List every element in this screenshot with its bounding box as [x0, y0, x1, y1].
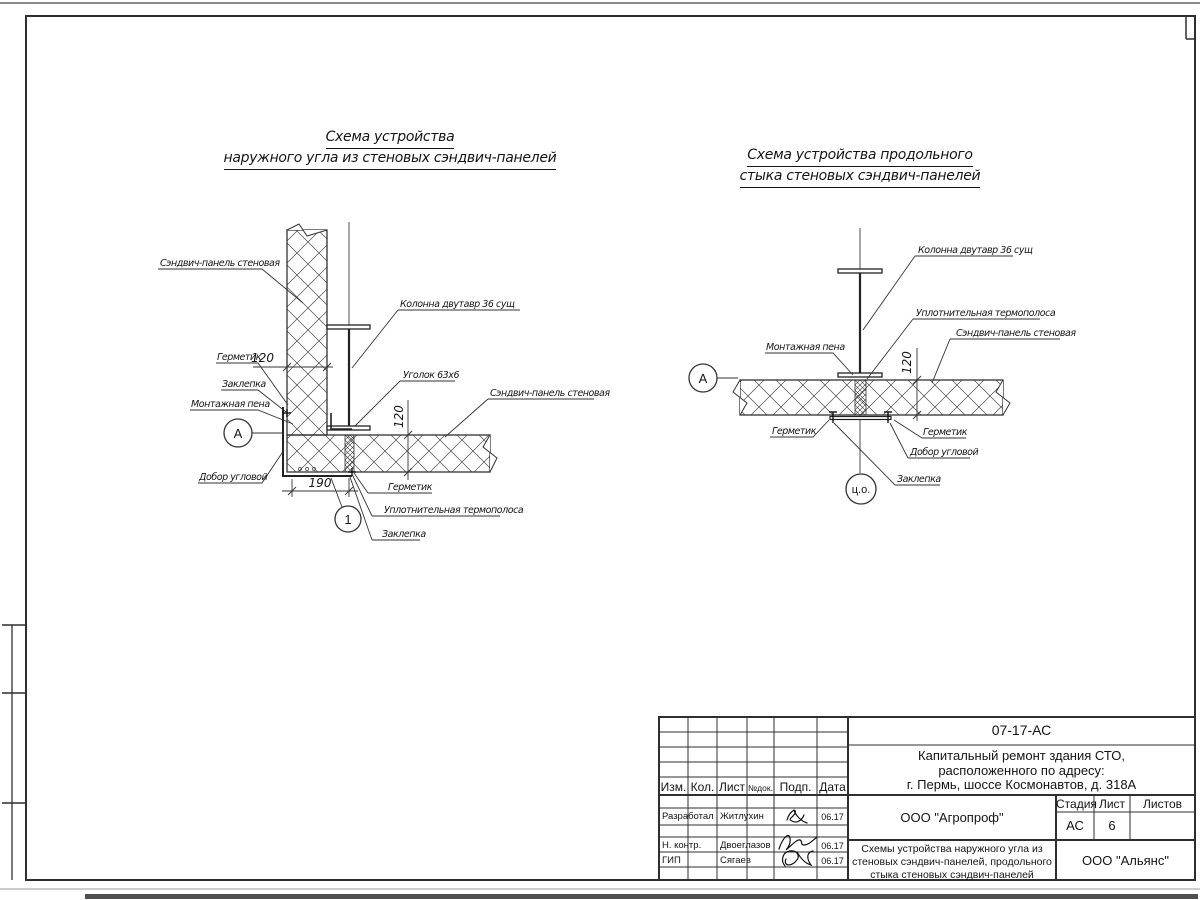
- right-diagram-title: Схема устройства продольного стыка стено…: [688, 146, 1032, 188]
- sign-name-gip: Сягаев: [720, 855, 751, 866]
- thermo-strip-joint: [855, 380, 866, 415]
- dim-panel-thickness: 120: [392, 405, 406, 428]
- dim-corner-width: 190: [309, 476, 332, 490]
- label-foam: Монтажная пена: [766, 342, 845, 353]
- label-rivet: Заклепка: [897, 474, 941, 485]
- i-beam-column: [327, 222, 370, 430]
- org-top: ООО "Агропроф": [848, 810, 1056, 825]
- wall-panel: [740, 380, 1003, 415]
- signature-dvoeglazov: [779, 835, 817, 850]
- rev-header-ndok: №док.: [747, 783, 774, 793]
- doc-number: 07-17-АС: [848, 722, 1195, 738]
- right-detail-drawing: 120 А ц.о. Колонна двутавр 36 сущ Уплотн…: [689, 228, 1076, 504]
- thermo-strip-joint: [345, 435, 354, 472]
- signature-syagaev: [783, 851, 813, 866]
- rev-header-data: Дата: [817, 780, 848, 794]
- org-bottom: ООО "Альянс": [1056, 853, 1195, 868]
- rev-header-podp: Подп.: [774, 780, 817, 794]
- rev-header-kol: Кол.: [688, 780, 717, 794]
- right-diagram-title-line2: стыка стеновых сэндвич-панелей: [740, 167, 981, 188]
- rev-header-list: Лист: [717, 780, 747, 794]
- detail-marker-number: 1: [344, 512, 351, 527]
- label-column: Колонна двутавр 36 сущ: [918, 245, 1033, 256]
- left-diagram-title: Схема устройства наружного угла из стено…: [210, 128, 570, 170]
- node-marker-letter: А: [699, 371, 708, 386]
- sheet-name-line2: стеновых сэндвич-панелей, продольного: [852, 856, 1052, 868]
- label-sealant: Герметик: [772, 426, 817, 437]
- label-sealant: Герметик: [388, 482, 433, 493]
- sheet-name-line3: стыка стеновых сэндвич-панелей: [870, 869, 1034, 881]
- stage-value: АС: [1056, 818, 1094, 833]
- sign-role-gip: ГИП: [662, 855, 681, 866]
- sign-role-ncontrol: Н. контр.: [662, 840, 701, 851]
- label-sealant: Герметик: [217, 352, 262, 363]
- node-marker-letter: А: [234, 426, 243, 441]
- sheet-name: Схемы устройства наружного угла из стено…: [850, 843, 1054, 882]
- right-diagram-title-line1: Схема устройства продольного: [747, 146, 972, 167]
- list-value: 6: [1094, 818, 1130, 833]
- signature-zhitlukhin: [787, 810, 807, 823]
- dim-panel-thickness: 120: [900, 351, 914, 374]
- sign-name-ncontrol: Двоеглазов: [720, 840, 771, 851]
- label-rivet: Заклепка: [382, 529, 426, 540]
- label-sandwich-panel: Сэндвич-панель стеновая: [490, 388, 610, 399]
- label-thermo-strip: Уплотнительная термополоса: [916, 308, 1056, 319]
- label-angle: Уголок 63х6: [403, 370, 459, 381]
- signatures: [779, 810, 817, 866]
- sign-date-gip: 06.17: [817, 856, 848, 866]
- left-diagram-title-line1: Схема устройства: [326, 128, 455, 149]
- label-column: Колонна двутавр 36 сущ: [400, 299, 515, 310]
- left-diagram-title-line2: наружного угла из стеновых сэндвич-панел…: [224, 149, 557, 170]
- sign-name-developer: Житлухин: [720, 811, 764, 822]
- axis-marker-label: ц.о.: [852, 484, 871, 496]
- label-sandwich-panel: Сэндвич-панель стеновая: [956, 328, 1076, 339]
- sign-date-developer: 06.17: [817, 812, 848, 822]
- rev-header-izm: Изм.: [659, 780, 688, 794]
- project-line2: расположенного по адресу:: [938, 763, 1104, 778]
- stage-header: Стадия: [1056, 797, 1094, 811]
- list-header: Лист: [1094, 797, 1130, 811]
- label-corner-trim: Добор угловой: [909, 447, 978, 458]
- listov-header: Листов: [1130, 797, 1195, 811]
- project-line3: г. Пермь, шоссе Космонавтов, д. 318А: [907, 777, 1136, 792]
- sign-role-developer: Разработал: [662, 811, 714, 822]
- sheet-name-line1: Схемы устройства наружного угла из: [861, 843, 1042, 855]
- label-sealant: Герметик: [923, 427, 968, 438]
- label-foam: Монтажная пена: [191, 399, 270, 410]
- project-line1: Капитальный ремонт здания СТО,: [918, 748, 1125, 763]
- label-corner-trim: Добор угловой: [198, 472, 267, 483]
- project-name: Капитальный ремонт здания СТО, расположе…: [848, 749, 1195, 793]
- left-detail-drawing: 120 120 190 А 1 Сэндвич-панель стеновая …: [158, 222, 610, 540]
- corner-trim-plate: [830, 417, 891, 420]
- sign-date-ncontrol: 06.17: [817, 841, 848, 851]
- label-rivet: Заклепка: [222, 379, 266, 390]
- label-sandwich-panel: Сэндвич-панель стеновая: [160, 258, 280, 269]
- wall-panel-vertical: [287, 230, 327, 435]
- drawing-sheet: 120 120 190 А 1 Сэндвич-панель стеновая …: [0, 0, 1200, 900]
- label-thermo-strip: Уплотнительная термополоса: [384, 505, 524, 516]
- wall-panel-horizontal: [287, 435, 490, 472]
